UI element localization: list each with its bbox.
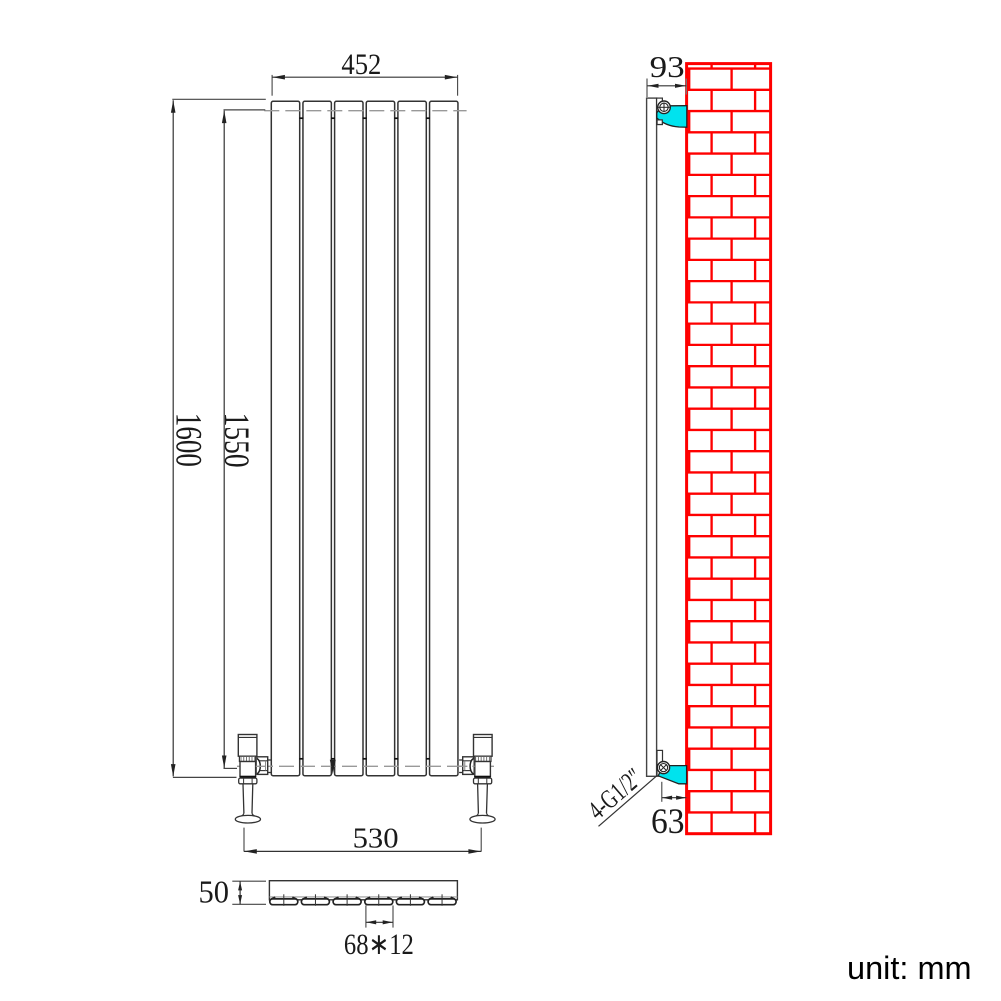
- svg-text:unit: mm: unit: mm: [847, 950, 972, 986]
- svg-text:1550: 1550: [217, 413, 257, 468]
- svg-text:530: 530: [353, 823, 399, 854]
- svg-text:68∗12: 68∗12: [344, 928, 414, 961]
- svg-text:1600: 1600: [169, 413, 210, 467]
- svg-text:452: 452: [341, 49, 381, 81]
- svg-text:93: 93: [650, 50, 685, 84]
- svg-text:50: 50: [199, 873, 230, 909]
- svg-text:63: 63: [651, 801, 685, 841]
